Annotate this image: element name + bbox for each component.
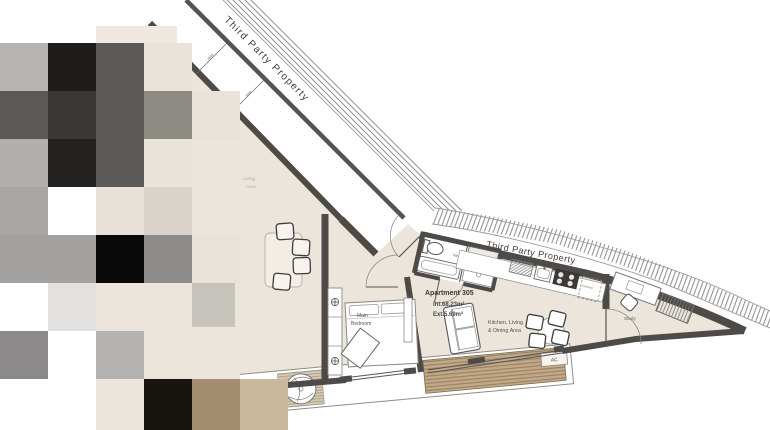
svg-text:Bedroom: Bedroom xyxy=(351,321,371,327)
mosaic-cell xyxy=(96,379,144,430)
sink-icon xyxy=(534,265,553,282)
mosaic-cell xyxy=(0,91,48,139)
mosaic-cell xyxy=(96,283,192,331)
mosaic-cell xyxy=(192,283,235,327)
chair-icon xyxy=(273,273,291,290)
mosaic-cell xyxy=(144,331,240,379)
mosaic-cell xyxy=(96,235,144,283)
mosaic-cell xyxy=(96,187,144,235)
window-mark-icon xyxy=(331,298,338,305)
mosaic-cell xyxy=(96,43,144,91)
mosaic-cell xyxy=(144,91,192,139)
mosaic-cell xyxy=(96,139,144,187)
bedroom: Main Bedroom xyxy=(328,288,418,375)
mosaic-cell xyxy=(192,91,240,139)
apartment-number: Apartment 305 xyxy=(425,290,474,297)
mosaic-cell xyxy=(144,139,192,187)
bedroom-window-recess xyxy=(404,298,412,342)
svg-text:Main: Main xyxy=(357,313,368,319)
mosaic-cell xyxy=(144,187,192,235)
internal-area: Int.68.23m² xyxy=(433,301,464,308)
mosaic-cell xyxy=(0,139,48,187)
mosaic-cell xyxy=(48,187,96,235)
floor-plan-image: AC Third Party Property Third Party Prop… xyxy=(0,0,770,430)
chair-icon xyxy=(529,333,546,349)
mosaic-cell xyxy=(144,26,177,43)
mosaic-cell xyxy=(48,283,96,331)
svg-text:Area: Area xyxy=(246,184,256,189)
door-frame-block xyxy=(340,375,353,382)
mosaic-cell xyxy=(0,43,48,91)
mosaic-cell xyxy=(192,235,240,283)
wardrobe xyxy=(328,288,342,375)
mosaic-cell xyxy=(0,187,48,235)
chair-icon xyxy=(551,329,570,346)
mosaic-cell xyxy=(96,26,144,43)
mosaic-cell xyxy=(240,379,288,430)
window-mark-icon xyxy=(331,357,338,364)
mosaic-cell xyxy=(0,379,96,430)
svg-text:Kitchen, Living: Kitchen, Living xyxy=(488,320,523,326)
chair-icon xyxy=(276,223,294,240)
external-area: Ext.5.69m² xyxy=(433,311,463,318)
svg-text:Living: Living xyxy=(243,176,255,181)
mosaic-cell xyxy=(192,379,240,430)
mosaic-cell xyxy=(0,283,48,331)
chair-icon xyxy=(293,257,311,274)
mosaic-cell xyxy=(48,91,96,139)
chair-icon xyxy=(526,314,544,331)
mosaic-cell xyxy=(48,331,96,379)
mosaic-cell xyxy=(96,91,144,139)
ac-unit-label: AC xyxy=(551,357,559,364)
mosaic-cell xyxy=(144,235,192,283)
mosaic-cell xyxy=(144,379,192,430)
mosaic-cell xyxy=(48,43,96,91)
mosaic-cell xyxy=(48,139,96,187)
chair-icon xyxy=(548,310,567,327)
mosaic-cell xyxy=(96,331,144,379)
mosaic-cell xyxy=(144,43,192,91)
study-label: Study xyxy=(624,316,636,321)
mosaic-cell xyxy=(0,235,96,283)
dimension-tick xyxy=(196,43,227,74)
svg-text:& Dining Area: & Dining Area xyxy=(488,328,521,334)
chair-icon xyxy=(292,239,310,256)
door-frame-block xyxy=(404,367,417,374)
mosaic-cell xyxy=(0,331,48,379)
